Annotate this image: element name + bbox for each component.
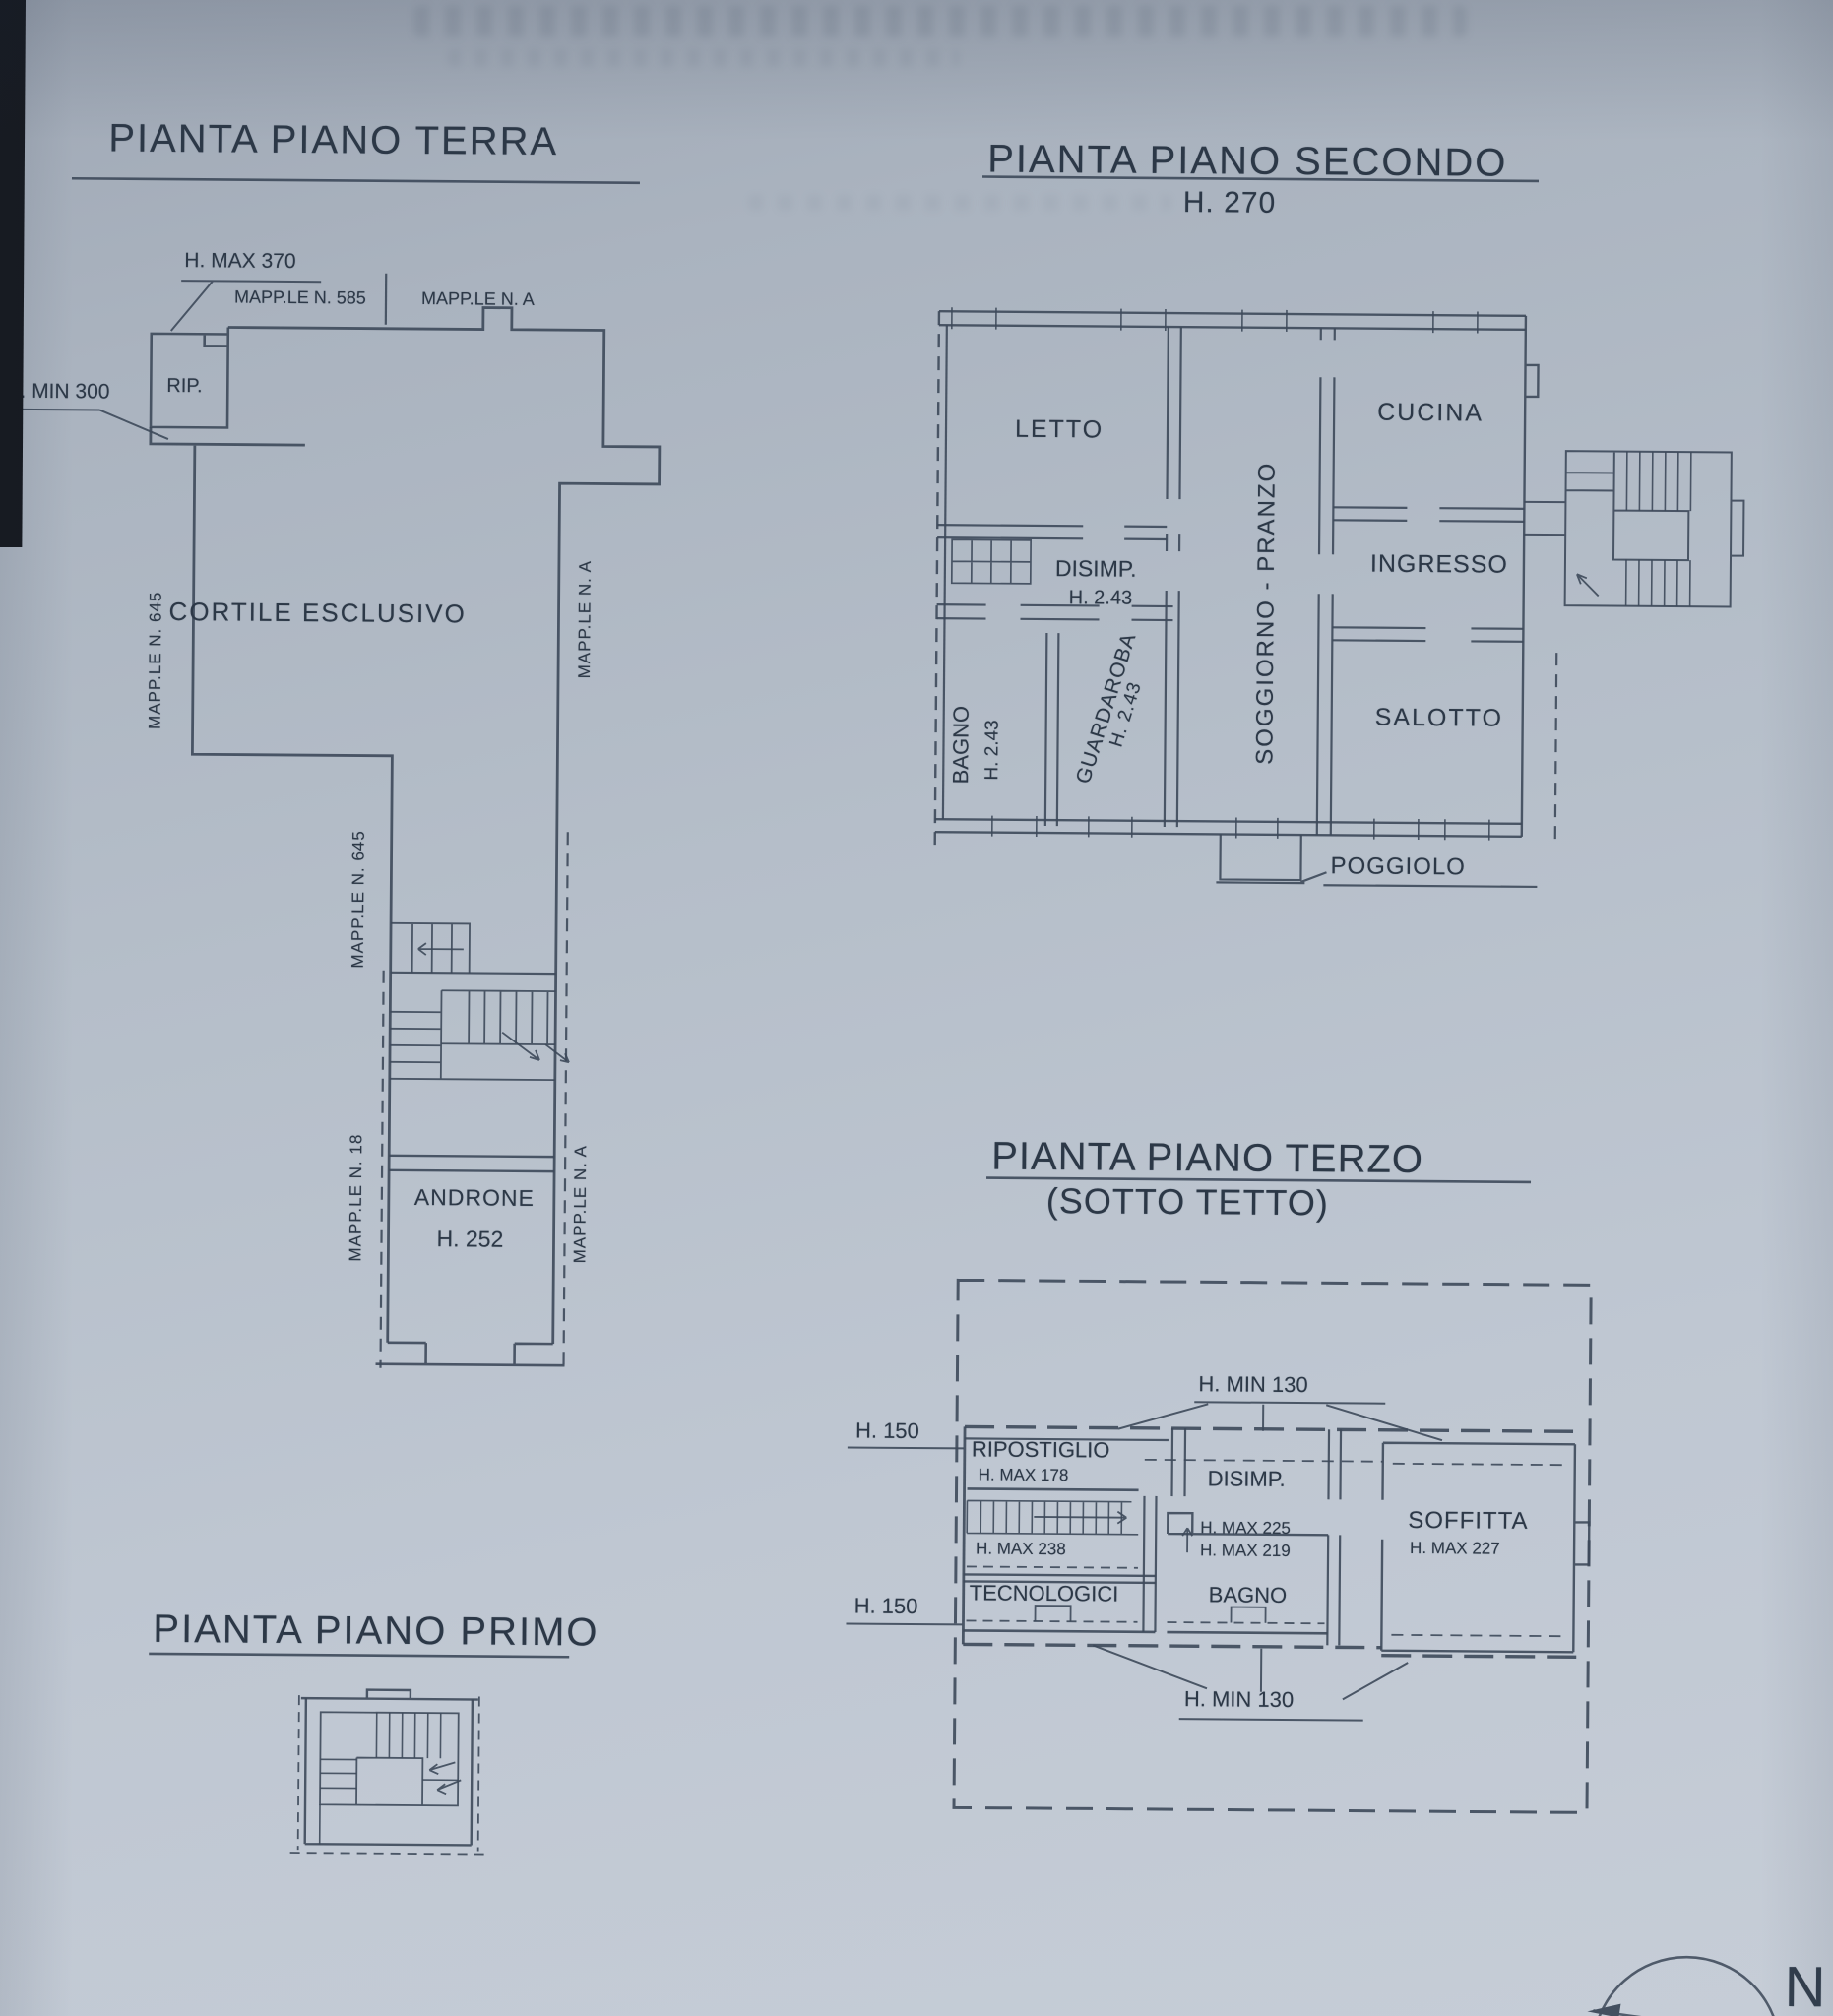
terra-cortile-label: CORTILE ESCLUSIVO (168, 598, 466, 628)
terzo-plan-drawing (845, 1176, 1592, 1812)
terzo-ripostiglio-height: H. MAX 178 (979, 1467, 1069, 1485)
external-stair-arrow (1577, 574, 1599, 596)
terzo-ripostiglio-label: RIPOSTIGLIO (972, 1437, 1110, 1461)
h-150-top-line (848, 1447, 964, 1448)
terra-mapple-645-lower: MAPP.LE N. 645 (349, 822, 368, 968)
secondo-disimp-height: H. 2.43 (1069, 588, 1133, 609)
attic-middle-walls (1143, 1428, 1185, 1632)
h-min-130-top-leaders (1118, 1402, 1442, 1441)
scan-edge-artifact (0, 0, 26, 547)
terra-mapple-18: MAPP.LE N. 18 (347, 1100, 365, 1261)
terzo-title: PIANTA PIANO TERZO (991, 1136, 1423, 1180)
tecnologici-door-symbol (1036, 1606, 1071, 1621)
north-letter: N (1784, 1958, 1825, 2016)
soggiorno-right-wall (1317, 328, 1335, 835)
terra-rip-room-label: RIP. (166, 376, 202, 397)
north-compass-circle (1592, 1956, 1780, 2016)
terzo-tecnologici-label: TECNOLOGICI (970, 1581, 1119, 1605)
terra-mapple-a-top: MAPP.LE N. A (421, 289, 535, 309)
terzo-h-150-top: H. 150 (855, 1419, 919, 1443)
stairwell-side-walls (305, 1698, 473, 1845)
letto-bottom-wall (937, 525, 1167, 539)
secondo-plan-drawing (934, 176, 1746, 888)
corridor-top-line (391, 973, 556, 974)
bagno-height-arrow (1182, 1528, 1192, 1552)
h-150-bottom-line (846, 1623, 962, 1624)
terzo-stair-height: H. MAX 238 (976, 1540, 1066, 1558)
terra-mapple-a-lower: MAPP.LE N. A (571, 1102, 590, 1263)
north-compass (1586, 1956, 1780, 2016)
service-row-top-wall (937, 604, 1173, 620)
bagno-guardaroba-divider (1045, 633, 1059, 826)
stair-direction-arrows (502, 1033, 569, 1063)
terra-title: PIANTA PIANO TERRA (108, 118, 558, 163)
bagno-right-wall (1327, 1429, 1341, 1645)
secondo-letto-label: LETTO (1015, 416, 1104, 443)
stairwell-arrows (429, 1762, 461, 1794)
h238-dashed-line (967, 1566, 1138, 1567)
bagno-door-dashed (1167, 1622, 1324, 1623)
letto-right-wall (1167, 327, 1180, 499)
secondo-bagno-label: BAGNO (949, 677, 973, 784)
terzo-h-min-top: H. MIN 130 (1198, 1372, 1307, 1396)
terzo-h-max-225: H. MAX 225 (1200, 1519, 1291, 1538)
main-stair-upper-flight (441, 990, 555, 1044)
secondo-disimp-label: DISIMP. (1055, 556, 1137, 581)
terra-androne-label: ANDRONE (414, 1185, 535, 1210)
drawing-sheet: PIANTA PIANO TERRA H. MAX 370 MAPP.LE N.… (0, 0, 1833, 2016)
androne-threshold (389, 1156, 554, 1171)
primo-title-underline (149, 1654, 569, 1657)
terra-h-max-370: H. MAX 370 (184, 250, 295, 273)
guardaroba-right-wall (1165, 534, 1179, 827)
ridge-height-dashed (1145, 1460, 1568, 1465)
left-wall (943, 325, 947, 819)
boundary-dashed-left (381, 971, 384, 1368)
h-min-300-leader (3, 409, 168, 439)
boundary-dashed-right (563, 832, 567, 1369)
stairwell-top-treads (376, 1713, 440, 1759)
androne-bottom-wall (376, 1343, 565, 1366)
attic-left-wall (963, 1426, 965, 1644)
secondo-title: PIANTA PIANO SECONDO (987, 139, 1508, 184)
terzo-soffitta-height: H. MAX 227 (1410, 1540, 1500, 1558)
floor-plan-scan-page: PIANTA PIANO TERRA H. MAX 370 MAPP.LE N.… (0, 0, 1833, 2016)
external-stair-block (1524, 451, 1744, 607)
primo-plan-drawing (148, 1654, 570, 1855)
tecnologici-bottom-wall (963, 1630, 1155, 1632)
cucina-bottom-wall (1333, 507, 1524, 522)
terra-title-underline (72, 178, 640, 183)
terra-androne-height: H. 252 (436, 1227, 503, 1251)
secondo-salotto-label: SALOTTO (1375, 705, 1503, 731)
bagno-door-symbol (1231, 1607, 1265, 1623)
main-stair-lower-flight (390, 990, 556, 1080)
terzo-bagno-label: BAGNO (1209, 1583, 1288, 1606)
terzo-disimp-label: DISIMP. (1208, 1467, 1286, 1490)
disimp-small-stair (952, 539, 1031, 584)
terzo-subtitle: (SOTTO TETTO) (1046, 1182, 1329, 1222)
stair-stub-arrow (418, 943, 464, 955)
terzo-h-150-bottom: H. 150 (854, 1595, 918, 1618)
top-wall (939, 311, 1526, 330)
terra-mapple-645-upper: MAPP.LE N. 645 (147, 547, 165, 729)
ripostiglio-bottom-wall (968, 1488, 1139, 1489)
roof-eave-bottom (963, 1644, 1381, 1647)
attic-stair-arrow (1034, 1511, 1126, 1524)
secondo-height: H. 270 (1183, 187, 1277, 219)
roof-eave-top (965, 1426, 1578, 1431)
bagno-bottom-wall (1167, 1632, 1327, 1633)
right-wall (1522, 316, 1539, 837)
party-wall-dashed (935, 311, 939, 845)
external-stair-treads (1626, 452, 1691, 607)
tecnologici-door-dashed (967, 1620, 1138, 1621)
roof-eave-bottom-soffitta (1381, 1656, 1576, 1658)
bottom-wall (935, 819, 1522, 837)
terra-mapple-585: MAPP.LE N. 585 (234, 288, 366, 308)
terzo-h-min-bottom: H. MIN 130 (1184, 1687, 1294, 1711)
secondo-soggiorno-pranzo-label: SOGGIORNO - PRANZO (1252, 448, 1280, 765)
terra-mapple-a-mid: MAPP.LE N. A (576, 544, 595, 678)
secondo-poggiolo-label: POGGIOLO (1330, 853, 1466, 879)
primo-title: PIANTA PIANO PRIMO (153, 1608, 599, 1654)
terra-plan-drawing (0, 178, 662, 1370)
salotto-top-wall (1332, 627, 1523, 642)
terzo-soffitta-label: SOFFITTA (1408, 1508, 1528, 1534)
terzo-h-max-219: H. MAX 219 (1200, 1542, 1291, 1560)
stair-stub (391, 923, 470, 974)
stairwell-top-wall (301, 1689, 478, 1699)
secondo-cucina-label: CUCINA (1377, 400, 1484, 426)
secondo-ingresso-label: INGRESSO (1370, 551, 1508, 578)
salotto-boundary-dashed (1555, 653, 1556, 840)
secondo-bagno-height: H. 2.43 (982, 682, 1003, 781)
soffitta-inner-dashed (1391, 1635, 1563, 1636)
stairwell-side-treads (320, 1759, 459, 1845)
